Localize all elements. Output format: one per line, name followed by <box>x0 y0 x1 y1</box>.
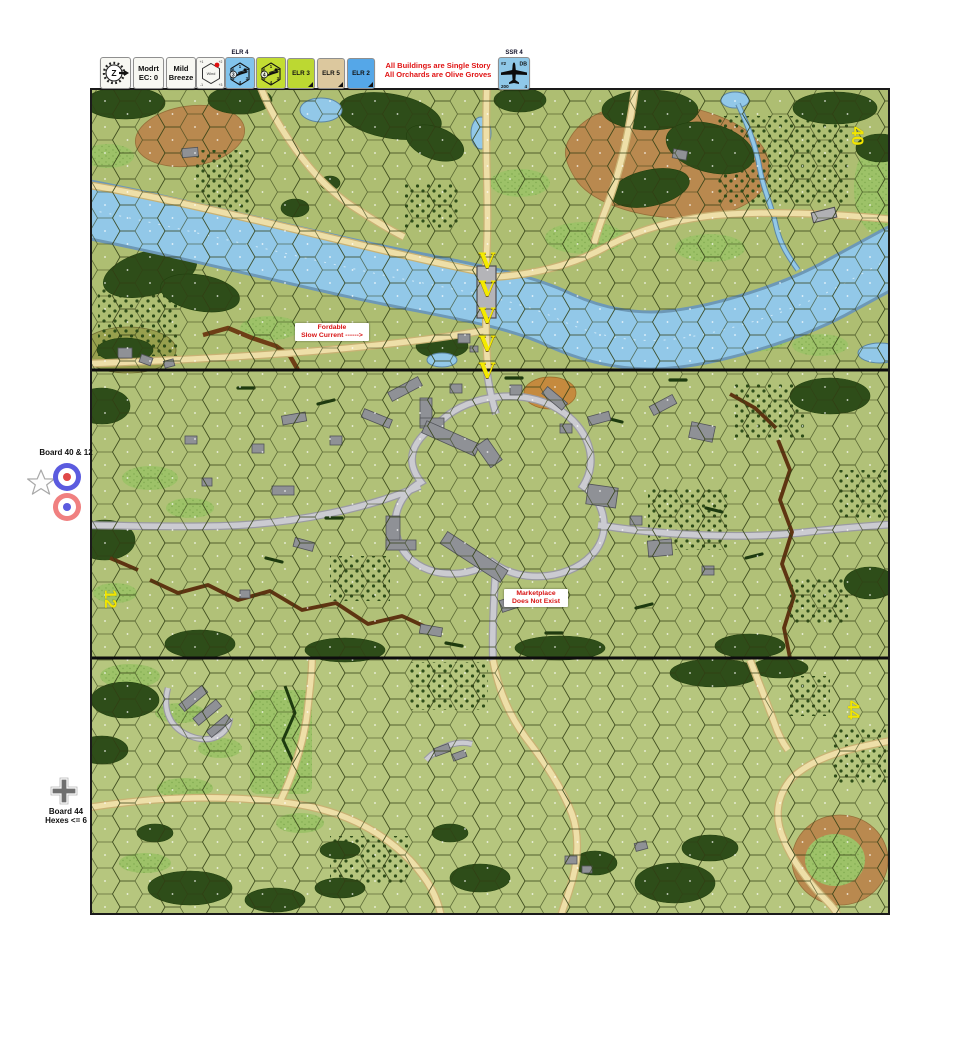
boards-label[interactable]: Board 40 & 12 <box>30 448 102 457</box>
wind-dial-marker-dot <box>214 63 219 68</box>
wind-arrow-icon <box>124 70 129 76</box>
breeze-line2: Breeze <box>169 73 194 82</box>
wind-dial-icon: Wind +1 +2 +3 -1 <box>197 58 225 88</box>
roundel-center <box>63 503 71 511</box>
fordable-line2: Slow Current ------> <box>297 332 367 340</box>
elr5-counter[interactable]: ELR 5 <box>317 58 345 89</box>
sniper-icon: 1 2 3 4 5 6 3 <box>225 58 255 88</box>
board44-note[interactable]: Board 44 Hexes <= 6 <box>36 807 96 825</box>
game-map[interactable] <box>90 88 890 915</box>
svg-text:1: 1 <box>270 64 273 69</box>
board44-note-line2: Hexes <= 6 <box>36 816 96 825</box>
board-number-40: 40 <box>847 121 867 151</box>
breeze-line1: Mild <box>174 64 189 73</box>
elr5-label: ELR 5 <box>322 70 340 77</box>
elr2-label: ELR 2 <box>352 70 370 77</box>
current-direction-arrows[interactable]: VVVVV <box>470 247 504 385</box>
elr2-counter[interactable]: ELR 2 <box>347 58 375 89</box>
elr4-label: ELR 4 <box>220 50 260 57</box>
breeze-counter[interactable]: Mild Breeze <box>166 57 196 89</box>
wind-dial-counter[interactable]: Wind +1 +2 +3 -1 <box>196 57 225 89</box>
fordable-label[interactable]: Fordable Slow Current ------> <box>295 323 369 341</box>
sniper-icon: 1 2 3 4 5 6 4 <box>256 58 286 88</box>
marketplace-line1: Marketplace <box>506 590 566 598</box>
fordable-line1: Fordable <box>297 324 367 332</box>
german-cross-icon[interactable] <box>49 776 79 806</box>
elr3-counter[interactable]: ELR 3 <box>287 58 315 89</box>
svg-text:+1: +1 <box>199 60 203 64</box>
dive-bomber-icon: #2 DB 200 4 <box>499 58 529 89</box>
allied-roundel-blue-icon[interactable] <box>53 463 81 491</box>
svg-text:1: 1 <box>239 64 242 69</box>
ec-line1: Modrt <box>138 64 159 73</box>
svg-text:#2: #2 <box>501 61 507 66</box>
svg-text:+3: +3 <box>218 83 222 87</box>
roundel-center <box>63 473 71 481</box>
svg-text:Z: Z <box>111 68 116 78</box>
elr3-label: ELR 3 <box>292 70 310 77</box>
map-area[interactable] <box>90 88 890 915</box>
board-number-12: 12 <box>100 584 120 614</box>
hex-grid <box>90 88 890 915</box>
aircraft-counter[interactable]: #2 DB 200 4 <box>498 57 530 90</box>
svg-text:3: 3 <box>232 72 235 78</box>
vasl-game-window: VVVVV Fordable Slow Current ------> Mark… <box>0 0 978 1038</box>
board-number-44: 44 <box>843 695 863 725</box>
svg-text:Wind: Wind <box>206 72 215 76</box>
svg-text:-1: -1 <box>199 83 202 87</box>
board44-note-line1: Board 44 <box>36 807 96 816</box>
svg-text:4: 4 <box>263 72 266 78</box>
wind-direction-counter[interactable]: Z <box>100 57 131 89</box>
sniper-counter-green[interactable]: 1 2 3 4 5 6 4 <box>256 57 286 89</box>
svg-text:4: 4 <box>524 84 527 89</box>
ec-line2: EC: 0 <box>139 73 158 82</box>
notice-line1: All Buildings are Single Story <box>381 61 495 70</box>
svg-text:DB: DB <box>520 62 528 68</box>
ec-counter[interactable]: Modrt EC: 0 <box>133 57 164 89</box>
ssr4-label: SSR 4 <box>496 50 532 57</box>
notice-line2: All Orchards are Olive Groves <box>381 70 495 79</box>
marketplace-label[interactable]: Marketplace Does Not Exist <box>504 589 568 607</box>
svg-text:+2: +2 <box>218 60 222 64</box>
allied-roundel-red-icon[interactable] <box>53 493 81 521</box>
marketplace-line2: Does Not Exist <box>506 598 566 606</box>
sniper-counter-blue[interactable]: 1 2 3 4 5 6 3 <box>225 57 255 89</box>
svg-text:200: 200 <box>501 84 509 89</box>
compass-icon: Z <box>101 58 130 88</box>
scenario-notice[interactable]: All Buildings are Single Story All Orcha… <box>381 61 495 79</box>
